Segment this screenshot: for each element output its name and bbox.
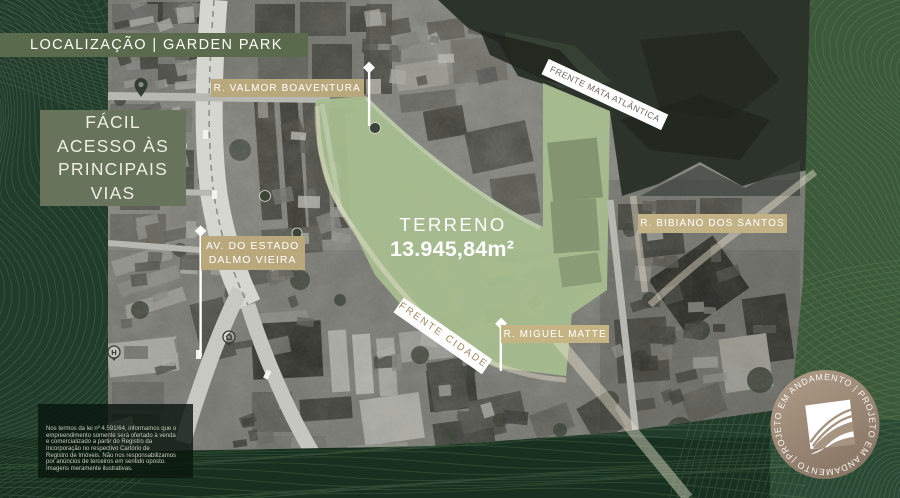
svg-text:H: H (111, 348, 116, 357)
